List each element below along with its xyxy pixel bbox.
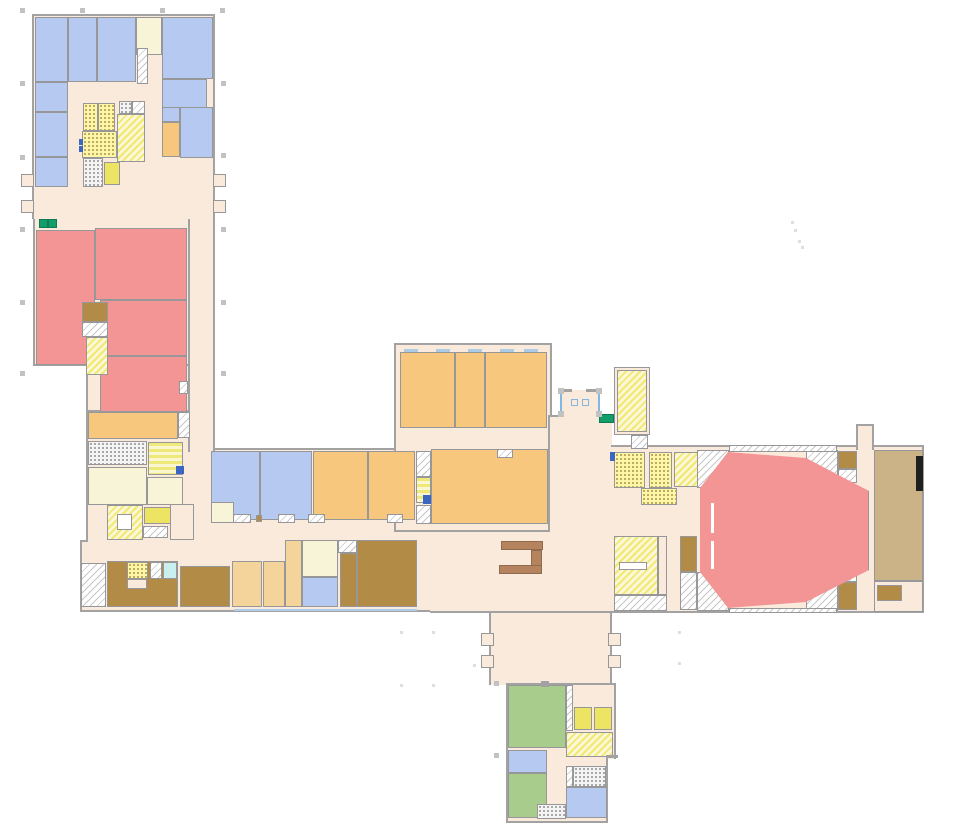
door-marker-d2 [423, 495, 431, 504]
vestibule-glass-right [598, 391, 600, 412]
region-east-stub [856, 424, 874, 450]
grid-dot-10 [798, 240, 801, 243]
vestibule-notch-1 [571, 399, 578, 406]
window-tick-5 [524, 349, 538, 352]
column-marker-2 [80, 8, 85, 13]
region-lobby-north [548, 415, 612, 540]
room-blue-b2 [260, 451, 312, 520]
window-tick-6 [234, 609, 417, 611]
column-marker-13 [221, 300, 226, 305]
room-red-4 [100, 356, 187, 412]
room-brown-s8b [357, 540, 417, 607]
room-orange-a11 [162, 122, 180, 157]
shaft-core [132, 101, 145, 114]
door-marker-core-2 [79, 146, 83, 152]
room-red-3 [100, 300, 187, 356]
grid-dot-1 [400, 631, 403, 634]
equipment-teal-2 [48, 219, 57, 228]
column-marker-9 [20, 371, 25, 376]
shaft-red-4 [179, 381, 188, 394]
stage-screen [916, 456, 923, 491]
window-tick-2 [436, 349, 450, 352]
elevator-sb-2 [594, 707, 612, 730]
stair-g1-landing [619, 562, 647, 570]
column-marker-6 [20, 155, 25, 160]
equipment-teal-1 [39, 219, 48, 228]
shaft-sb-1 [566, 685, 573, 731]
stair-red-wing [86, 337, 108, 375]
room-office-a3 [97, 17, 136, 82]
room-pale-m4 [88, 467, 147, 505]
shaft-a [137, 48, 148, 84]
room-office-a9 [162, 79, 207, 109]
room-orange-s4a [263, 561, 285, 607]
auditorium-aisle-1 [711, 503, 714, 533]
lobby-desk-top [501, 541, 543, 550]
room-red-2 [95, 228, 187, 300]
auditorium-aisle-2 [711, 541, 714, 569]
stair-core-main [117, 114, 145, 162]
vestibule-post-3 [558, 411, 564, 417]
room-office-a6 [35, 82, 68, 112]
stage-brown-br [838, 582, 857, 610]
pilaster-ne-2 [213, 200, 226, 213]
grid-dot-4 [432, 684, 435, 687]
room-cyan-s1 [163, 562, 177, 579]
restroom-e2 [649, 452, 672, 488]
grid-dot-2 [432, 631, 435, 634]
stair-sb-yhatch [566, 732, 613, 757]
vestibule-post-1 [558, 388, 564, 394]
restroom-e3 [641, 488, 677, 505]
stair-core-small [119, 101, 132, 114]
column-marker-10 [221, 81, 226, 86]
room-brown-s2 [180, 566, 230, 607]
elevator-sb-1 [574, 707, 592, 730]
vestibule-notch-2 [582, 399, 589, 406]
room-orange-t3 [485, 352, 547, 428]
vestibule-glass-left [560, 391, 562, 412]
room-office-a10 [180, 107, 213, 158]
column-marker-8 [20, 300, 25, 305]
room-brown-red-wing [82, 302, 108, 322]
room-office-a7 [35, 112, 68, 157]
wall-post-south-block [541, 681, 549, 687]
door-marker-core-1 [79, 139, 83, 145]
ramp-brown-1 [680, 536, 697, 572]
column-marker-1 [20, 8, 25, 13]
stage-step-brown [877, 585, 902, 601]
threshold-1 [233, 514, 251, 523]
window-tick-4 [500, 349, 514, 352]
column-marker-4 [220, 8, 225, 13]
threshold-4 [387, 514, 403, 523]
grid-dot-9 [794, 229, 797, 232]
room-orange-t1 [400, 352, 455, 428]
shaft-s7 [338, 540, 357, 553]
aud-hatch-top [729, 445, 837, 452]
room-orange-t2 [455, 352, 485, 428]
region-entry-vestibule [561, 390, 600, 417]
shaft-sw [81, 563, 106, 607]
lobby-desk-right [531, 550, 542, 566]
pilaster-se-2 [608, 655, 621, 668]
room-green-1 [508, 685, 566, 748]
pilaster-nw-2 [21, 200, 34, 213]
room-office-a2 [68, 17, 97, 82]
room-pale-m5 [147, 477, 183, 505]
shaft-s1 [150, 562, 162, 579]
pilaster-sw-2 [481, 655, 494, 668]
room-office-a1 [35, 17, 68, 82]
stairtower-north-shaft [631, 435, 648, 449]
restroom-core-3 [82, 131, 117, 158]
room-orange-m1 [88, 412, 178, 439]
window-tick-1 [404, 349, 418, 352]
threshold-brown [256, 515, 262, 522]
shaft-m1 [178, 412, 190, 438]
threshold-2 [278, 514, 295, 523]
grid-dot-7 [473, 664, 476, 667]
room-orange-s4b [285, 540, 302, 607]
shaft-d4 [497, 449, 513, 458]
stair-sb-dots-2 [537, 804, 566, 819]
column-marker-12 [221, 227, 226, 232]
grid-dot-5 [678, 631, 681, 634]
room-blue-s6 [302, 577, 338, 607]
stair-g1-shaft [614, 595, 667, 611]
shaft-red-wing [82, 322, 108, 337]
floor-plan [0, 0, 960, 837]
stair-core-2 [83, 158, 103, 187]
shaft-sb-2 [566, 766, 573, 787]
room-floor-m9 [170, 504, 194, 540]
vestibule-post-4 [596, 411, 602, 417]
room-orange-s3 [232, 561, 262, 607]
pilaster-ne-1 [213, 174, 226, 187]
room-orange-d4 [431, 449, 548, 524]
door-marker-m3 [176, 466, 184, 474]
room-pale-s5 [302, 540, 338, 577]
threshold-3 [308, 514, 325, 523]
stair-sb-dots-1 [573, 766, 606, 787]
stair-m6-core [117, 514, 132, 530]
room-pale-py1 [211, 502, 234, 523]
grid-dot-8 [791, 221, 794, 224]
closet-s1 [127, 579, 147, 589]
stairtower-north-fill [617, 370, 647, 432]
ramp-shaft-1 [680, 572, 697, 610]
room-office-a8 [35, 157, 68, 187]
aud-hatch-bottom [729, 608, 837, 613]
room-office-a5 [162, 17, 213, 79]
room-blue-sb2 [566, 787, 607, 818]
restroom-core-1 [83, 103, 98, 131]
shaft-m8 [143, 526, 168, 538]
shaft-d1 [416, 451, 431, 477]
column-marker-11 [221, 153, 226, 158]
region-corridor-north [188, 219, 215, 452]
vestibule-post-2 [596, 388, 602, 394]
pilaster-se-1 [608, 633, 621, 646]
door-marker-e1 [610, 452, 615, 461]
stair-gdots-m2 [88, 441, 147, 465]
stage-brown-tr [838, 451, 857, 469]
window-tick-3 [468, 349, 482, 352]
elevator-core [104, 162, 120, 185]
restroom-core-2 [98, 103, 115, 131]
column-marker-14 [221, 371, 226, 376]
column-marker-16 [494, 753, 499, 758]
grid-dot-6 [678, 662, 681, 665]
shaft-d3 [416, 505, 431, 524]
restroom-e1 [614, 452, 645, 488]
room-blue-sb1 [508, 750, 547, 773]
pilaster-sw-1 [481, 633, 494, 646]
column-marker-3 [160, 8, 165, 13]
grid-dot-11 [801, 246, 804, 249]
room-brown-s8a [340, 553, 357, 607]
column-marker-7 [20, 227, 25, 232]
pilaster-nw-1 [21, 174, 34, 187]
room-office-a10b [162, 107, 180, 122]
column-marker-15 [494, 681, 499, 686]
region-lobby-south [489, 613, 612, 685]
lobby-desk-bottom [499, 565, 542, 574]
grid-dot-3 [400, 684, 403, 687]
stair-g1-strip [658, 536, 667, 595]
room-orange-o2 [368, 451, 415, 520]
elevator-m7 [144, 507, 171, 524]
wall-step-south-block [606, 755, 618, 758]
restroom-s1 [127, 562, 148, 579]
column-marker-5 [20, 81, 25, 86]
room-orange-o1 [313, 451, 368, 520]
